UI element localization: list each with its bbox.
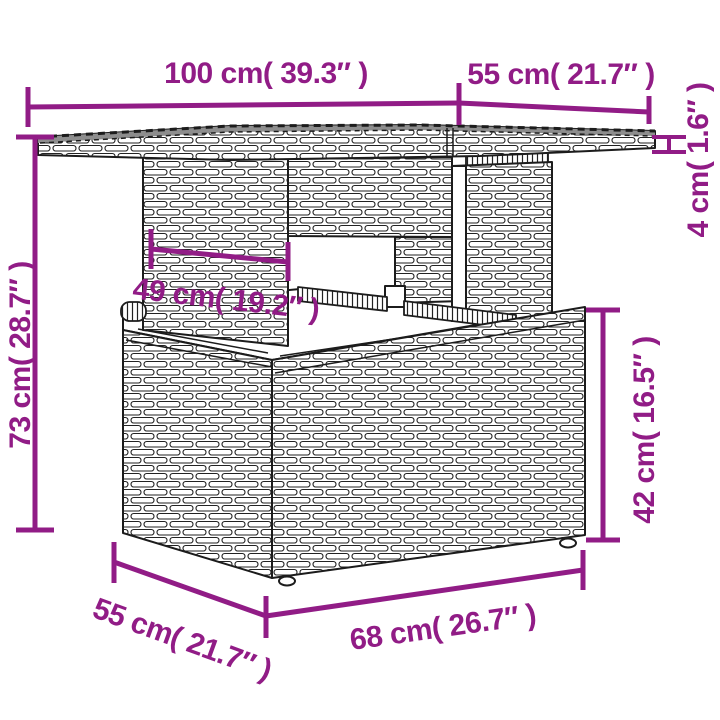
- dimension-bench-height-line: [586, 310, 620, 540]
- bench-front-left-face: [123, 330, 272, 578]
- table-back-apron: [288, 157, 452, 237]
- dimension-label-table-height: 73 cm( 28.7″ ): [6, 261, 36, 448]
- bench-foot-right: [560, 539, 576, 548]
- dimension-label-bench-height: 42 cm( 16.5″ ): [630, 336, 660, 523]
- dimension-label-table-depth: 55 cm( 21.7″ ): [467, 60, 654, 90]
- dimension-tabletop-thickness-bracket: [652, 137, 686, 152]
- table-right-leg-post: [452, 166, 466, 321]
- dimension-label-table-width: 100 cm( 39.3″ ): [164, 59, 368, 89]
- dimension-table-depth-line: [459, 96, 649, 124]
- bench-corner-post: [385, 286, 405, 307]
- dimension-label-tabletop-thickness: 4 cm( 1.6″ ): [684, 82, 714, 237]
- bench-foot-front: [279, 577, 295, 586]
- product-dimension-diagram: 100 cm( 39.3″ ) 55 cm( 21.7″ ) 4 cm( 1.6…: [0, 0, 720, 720]
